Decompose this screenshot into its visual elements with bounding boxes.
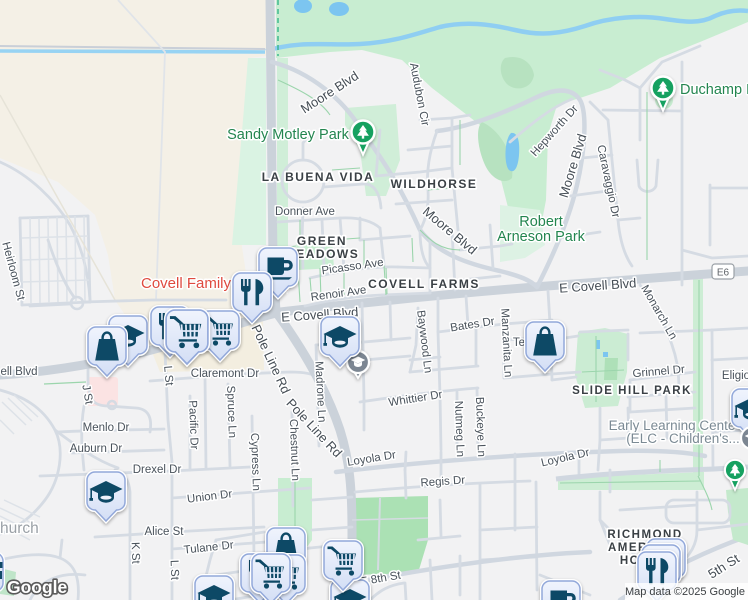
- svg-text:COVELL FARMS: COVELL FARMS: [368, 277, 480, 291]
- svg-text:Robert: Robert: [519, 214, 563, 230]
- svg-text:(ELC - Children's...: (ELC - Children's...: [626, 431, 740, 446]
- svg-text:Claremont Dr: Claremont Dr: [191, 368, 260, 380]
- svg-text:hurch: hurch: [0, 520, 39, 537]
- svg-text:E6: E6: [717, 268, 730, 279]
- svg-text:Arneson Park: Arneson Park: [497, 229, 586, 245]
- svg-text:Drexel Dr: Drexel Dr: [133, 464, 182, 476]
- svg-text:WILDHORSE: WILDHORSE: [391, 177, 478, 191]
- svg-text:Map data ©2025 Google: Map data ©2025 Google: [625, 586, 745, 598]
- svg-text:Duchamp Pl: Duchamp Pl: [680, 82, 748, 98]
- svg-text:Nutmeg Ln: Nutmeg Ln: [452, 401, 466, 458]
- svg-text:SLIDE HILL PARK: SLIDE HILL PARK: [572, 385, 692, 397]
- svg-text:L St: L St: [161, 365, 175, 387]
- svg-text:Te: Te: [513, 337, 525, 349]
- svg-text:Buckeye Ln: Buckeye Ln: [473, 397, 487, 457]
- svg-text:GREEN: GREEN: [297, 234, 347, 248]
- svg-text:Menlo Dr: Menlo Dr: [83, 422, 130, 434]
- svg-text:Spruce Ln: Spruce Ln: [224, 385, 238, 438]
- svg-text:Cypress Ln: Cypress Ln: [248, 433, 262, 492]
- svg-text:Google: Google: [7, 577, 68, 597]
- svg-text:Eligio: Eligio: [722, 370, 748, 382]
- svg-text:K St: K St: [129, 542, 142, 565]
- svg-text:LA BUENA VIDA: LA BUENA VIDA: [262, 170, 375, 184]
- svg-text:Alice St: Alice St: [145, 526, 185, 538]
- svg-text:Auburn Dr: Auburn Dr: [70, 443, 123, 455]
- svg-text:Chestnut Ln: Chestnut Ln: [287, 419, 301, 481]
- svg-text:Sandy Motley Park: Sandy Motley Park: [227, 127, 349, 143]
- svg-text:L St: L St: [168, 560, 181, 581]
- svg-text:Donner Ave: Donner Ave: [275, 206, 335, 218]
- svg-text:ell Blvd: ell Blvd: [0, 366, 37, 378]
- svg-text:Covell Family D: Covell Family D: [141, 275, 246, 292]
- svg-text:Pacific Dr: Pacific Dr: [186, 400, 200, 450]
